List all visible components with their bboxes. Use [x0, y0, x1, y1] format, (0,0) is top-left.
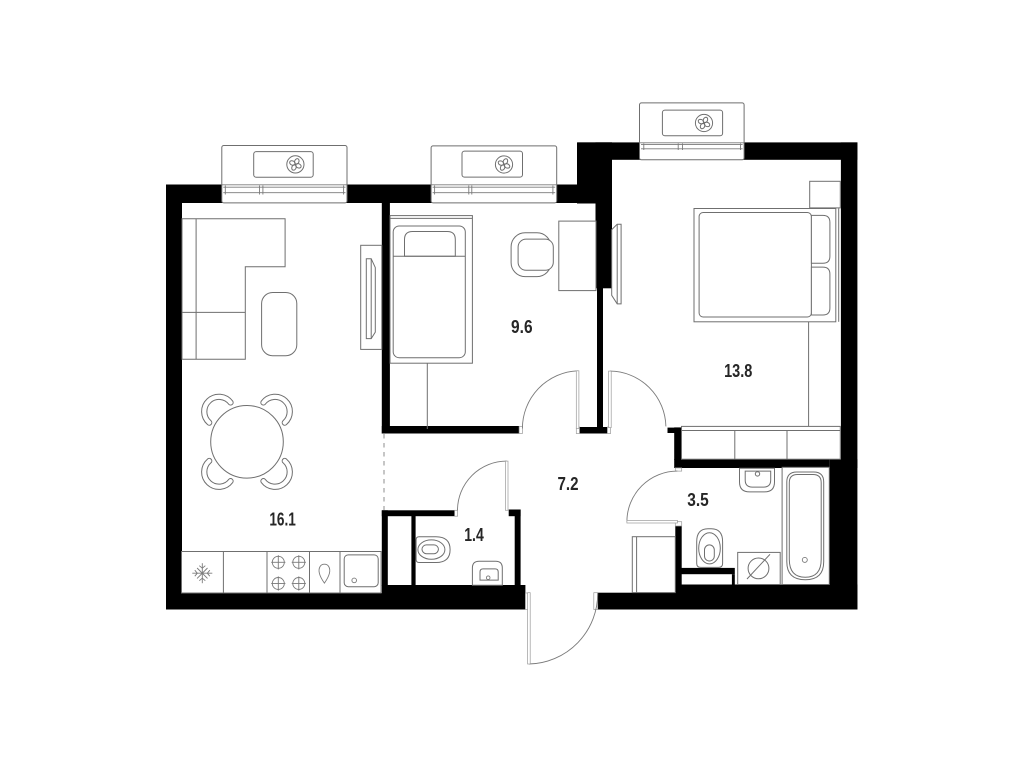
svg-text:9.6: 9.6	[511, 317, 533, 337]
svg-text:7.2: 7.2	[558, 474, 579, 494]
svg-text:1.4: 1.4	[464, 525, 484, 545]
svg-text:3.5: 3.5	[687, 490, 709, 510]
svg-text:13.8: 13.8	[724, 361, 752, 381]
svg-text:16.1: 16.1	[269, 510, 296, 530]
